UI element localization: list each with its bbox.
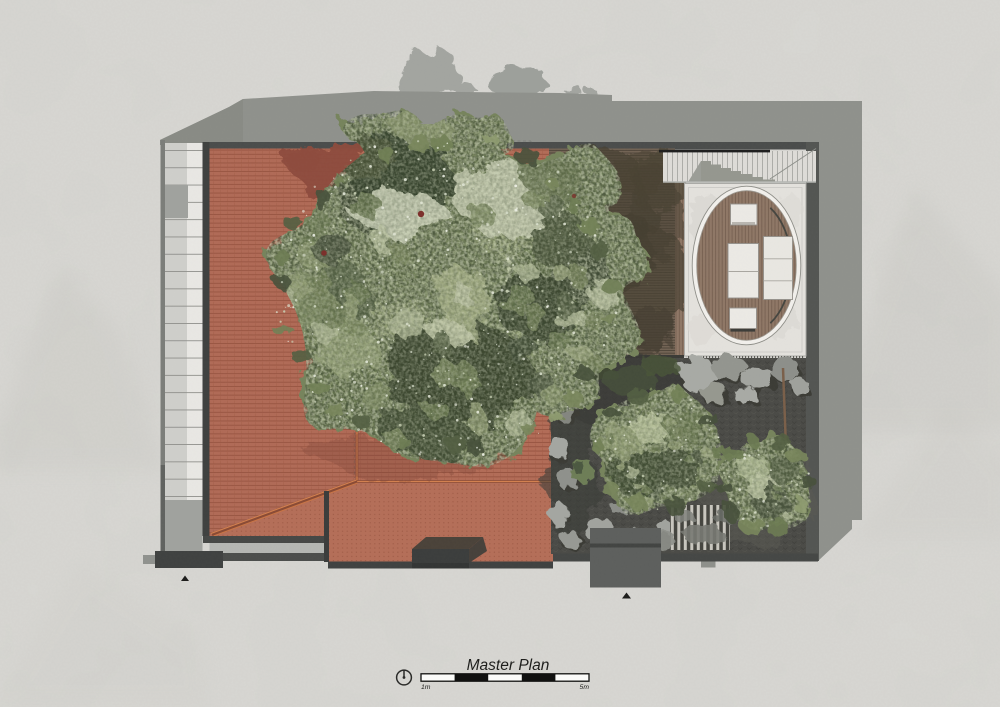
svg-text:Master Plan: Master Plan [467,657,550,674]
svg-text:5m: 5m [580,684,590,691]
svg-text:1m: 1m [421,684,431,691]
